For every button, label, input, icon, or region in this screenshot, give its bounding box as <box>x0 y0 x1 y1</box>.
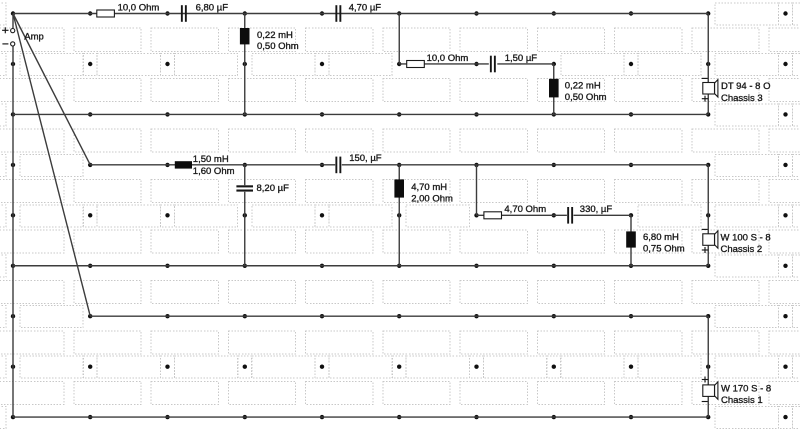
svg-text:Chassis 1: Chassis 1 <box>721 395 763 406</box>
svg-text:4,70 mH: 4,70 mH <box>411 182 447 193</box>
svg-text:0,50 Ohm: 0,50 Ohm <box>565 92 607 103</box>
svg-text:2,00 Ohm: 2,00 Ohm <box>411 193 453 204</box>
svg-text:6,80 mH: 6,80 mH <box>643 232 679 243</box>
svg-text:150, µF: 150, µF <box>349 153 382 164</box>
svg-text:Amp: Amp <box>24 32 44 43</box>
svg-text:10,0 Ohm: 10,0 Ohm <box>118 2 160 13</box>
svg-text:Chassis 2: Chassis 2 <box>721 244 763 255</box>
svg-text:0,75 Ohm: 0,75 Ohm <box>643 243 685 254</box>
svg-text:0,22 mH: 0,22 mH <box>257 30 293 41</box>
svg-text:0,22 mH: 0,22 mH <box>565 81 601 92</box>
svg-text:1,50 µF: 1,50 µF <box>505 53 538 64</box>
svg-text:0,50 Ohm: 0,50 Ohm <box>257 41 299 52</box>
svg-text:330, µF: 330, µF <box>580 204 613 215</box>
svg-text:1,50 mH: 1,50 mH <box>193 154 229 165</box>
svg-text:DT 94 - 8 O: DT 94 - 8 O <box>721 81 770 92</box>
svg-text:W 170 S - 8: W 170 S - 8 <box>721 384 771 395</box>
svg-text:1,60 Ohm: 1,60 Ohm <box>193 166 235 177</box>
svg-text:6,80 µF: 6,80 µF <box>196 2 229 13</box>
svg-text:Chassis 3: Chassis 3 <box>721 93 763 104</box>
svg-text:W 100 S - 8: W 100 S - 8 <box>721 233 771 244</box>
svg-text:8,20 µF: 8,20 µF <box>257 183 290 194</box>
svg-text:4,70 µF: 4,70 µF <box>349 2 382 13</box>
svg-text:10,0 Ohm: 10,0 Ohm <box>427 53 469 64</box>
svg-text:4,70 Ohm: 4,70 Ohm <box>504 204 546 215</box>
